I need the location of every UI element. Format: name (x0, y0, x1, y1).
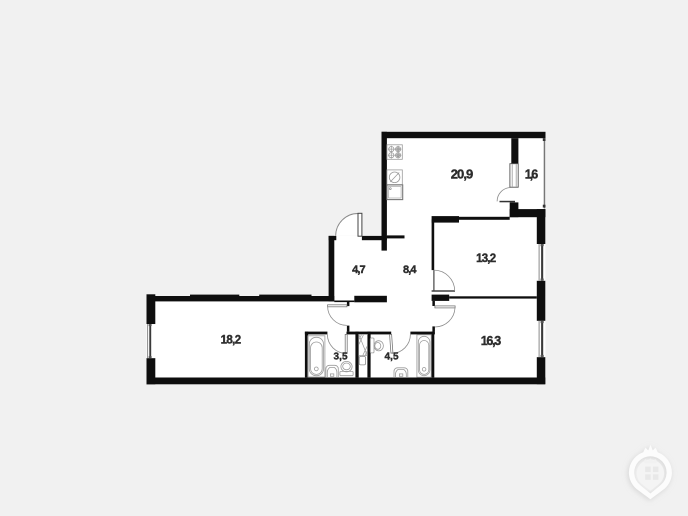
svg-text:16,3: 16,3 (481, 334, 502, 348)
svg-text:8,4: 8,4 (403, 264, 417, 276)
svg-text:1,6: 1,6 (525, 168, 539, 182)
svg-text:13,2: 13,2 (476, 253, 496, 265)
svg-text:4,7: 4,7 (352, 264, 366, 276)
svg-text:4,5: 4,5 (385, 352, 399, 363)
svg-text:18,2: 18,2 (221, 335, 242, 347)
svg-text:3,5: 3,5 (334, 351, 348, 362)
svg-text:20,9: 20,9 (451, 166, 474, 181)
